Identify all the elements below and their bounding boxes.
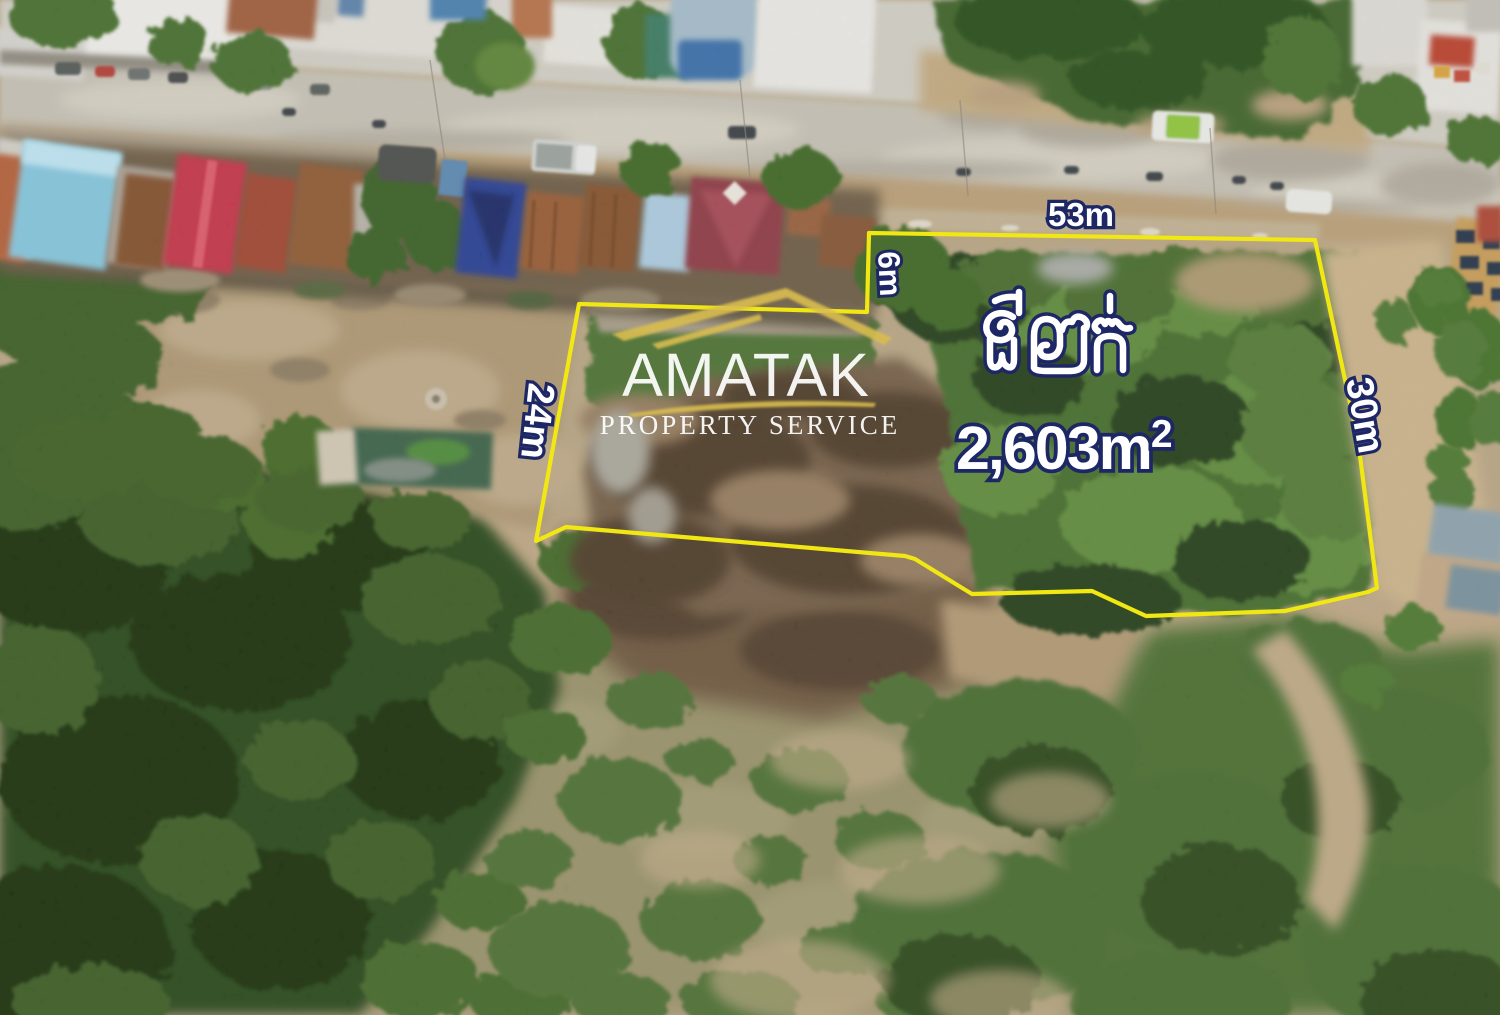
svg-text:AMATAK: AMATAK xyxy=(622,341,870,409)
svg-text:2,603m2: 2,603m2 xyxy=(956,413,1172,482)
svg-text:6m: 6m xyxy=(871,251,908,298)
svg-text:PROPERTY SERVICE: PROPERTY SERVICE xyxy=(600,410,901,440)
svg-text:24m: 24m xyxy=(512,381,562,461)
svg-text:53m: 53m xyxy=(1048,196,1114,233)
